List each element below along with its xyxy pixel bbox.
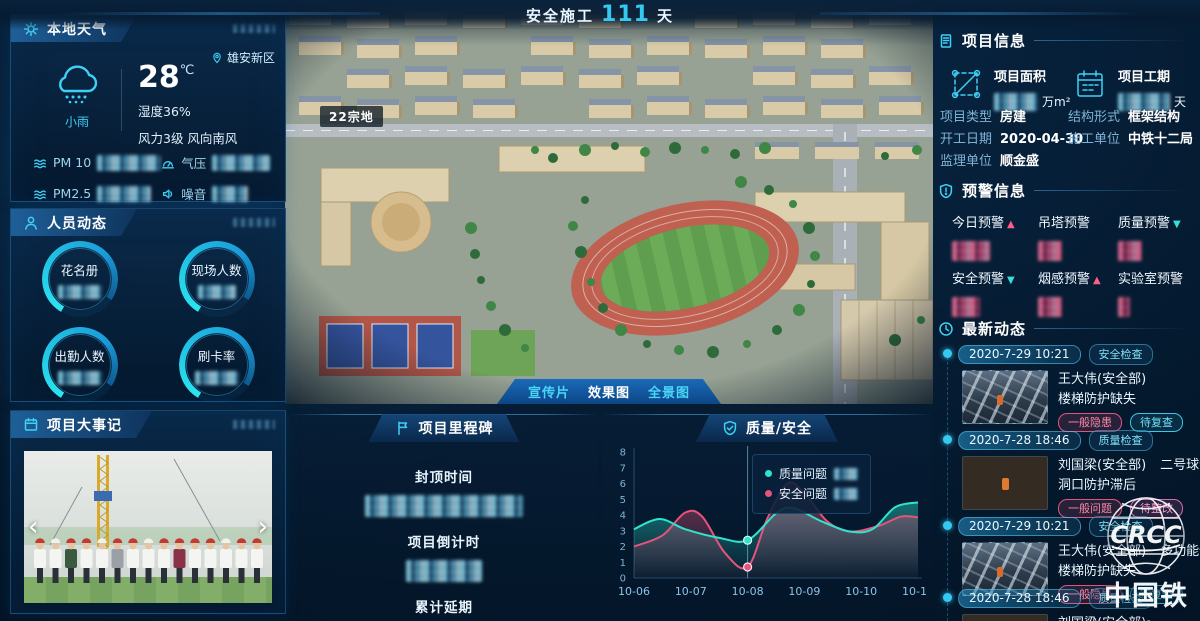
chart-tooltip: 质量问题 安全问题 [752, 454, 871, 514]
noise-value-blurred [212, 186, 248, 202]
ring-onsite: 现场人数 [179, 241, 255, 317]
clock-icon [938, 321, 954, 337]
carousel-next-icon[interactable]: › [258, 514, 268, 540]
milestone-panel: 项目里程碑 封顶时间 项目倒计时 累计延期 [290, 414, 598, 614]
alerts-title: 预警信息 [962, 180, 1026, 201]
land-parcel-label: 22宗地 [320, 106, 383, 127]
start-date-label: 开工日期 [940, 132, 992, 147]
ring-swipe-rate-label: 刷卡率 [198, 346, 236, 365]
svg-text:10-06: 10-06 [618, 585, 650, 598]
timeline-dot [943, 521, 952, 530]
area-icon [948, 66, 984, 102]
trend-down-icon: ▼ [1173, 219, 1181, 230]
alert-today-value-blurred [952, 241, 990, 261]
calendar-icon [1072, 66, 1108, 102]
svg-text:10-07: 10-07 [675, 585, 707, 598]
nav-panorama[interactable]: 全景图 [648, 382, 690, 401]
timeline-dot [943, 435, 952, 444]
svg-text:4: 4 [620, 511, 626, 522]
contractor-field: 施工单位中铁十二局 [1068, 128, 1193, 147]
quality-tooltip-value-blurred [834, 468, 858, 480]
entry-type-badge: 安全检查 [1089, 344, 1153, 365]
entry-photo[interactable] [962, 614, 1048, 621]
trend-up-icon: ▲ [1007, 219, 1015, 230]
entry-photo[interactable] [962, 370, 1048, 424]
project-duration-label: 项目工期 [1118, 66, 1186, 85]
pm25-value-blurred [97, 186, 151, 202]
ring-swipe-rate: 刷卡率 [179, 327, 255, 403]
svg-text:10-11: 10-11 [902, 585, 928, 598]
safety-legend-label: 安全问题 [779, 485, 827, 502]
entry-location: 二号球馆 [1160, 458, 1200, 473]
updates-title: 最新动态 [962, 318, 1026, 339]
ring-roster: 花名册 [42, 241, 118, 317]
events-panel: 项目大事记 ‹ › [10, 410, 286, 614]
svg-text:2: 2 [620, 542, 626, 553]
alert-crane-label: 吊塔预警 [1038, 216, 1090, 231]
countdown-value-blurred [406, 560, 482, 582]
crcc-chinese-name: 中国铁建 [1092, 574, 1200, 621]
project-area-stat: 项目面积 万m² [948, 66, 1071, 111]
project-type-field: 项目类型房建 [940, 106, 1026, 125]
entry-date: 2020-7-28 18:46 [958, 589, 1081, 608]
rain-cloud-icon [50, 63, 104, 107]
alert-quality-value-blurred [1118, 241, 1142, 261]
ring-attendance-label: 出勤人数 [54, 346, 104, 365]
chart-panel-header: 质量/安全 [696, 414, 838, 442]
alert-safety-label: 安全预警 [952, 272, 1004, 287]
trend-down-icon: ▼ [1007, 275, 1015, 286]
pressure-metric: 气压 [161, 153, 273, 172]
safe-days-count: 111 [601, 4, 650, 26]
chart-panel-title: 质量/安全 [746, 418, 812, 438]
project-area-label: 项目面积 [994, 66, 1071, 85]
safe-construction-label: 安全施工 [526, 5, 594, 26]
project-duration-stat: 项目工期 天 [1072, 66, 1186, 111]
contractor-value: 中铁十二局 [1128, 132, 1193, 147]
pressure-value-blurred [212, 155, 270, 171]
topping-time-value-blurred [365, 495, 523, 517]
update-entry[interactable]: 2020-7-29 10:21 安全检查 王大伟(安全部) 楼梯防护缺失 一般隐… [938, 344, 1200, 432]
alert-smoke: 烟感预警▲ [1038, 268, 1122, 317]
notebook-icon [23, 417, 39, 433]
quality-marker-dot [744, 536, 752, 544]
alert-safety-value-blurred [952, 297, 980, 317]
svg-text:10-08: 10-08 [732, 585, 764, 598]
header-line [1034, 40, 1190, 41]
safety-marker-dot [744, 563, 752, 571]
alert-lab-value-blurred [1118, 297, 1130, 317]
contractor-label: 施工单位 [1068, 132, 1120, 147]
weather-condition: 小雨 [33, 113, 121, 130]
mist-icon [33, 187, 47, 201]
events-panel-header: 项目大事记 [11, 411, 285, 439]
structure-type-field: 结构形式框架结构 [1068, 106, 1180, 125]
alert-smoke-value-blurred [1038, 297, 1062, 317]
updates-header: 最新动态 [938, 318, 1190, 339]
project-3d-view[interactable]: 22宗地 宣传片 效果图 全景图 [285, 0, 933, 404]
entry-person: 王大伟(安全部) [1058, 372, 1146, 387]
timeline-dot [943, 349, 952, 358]
supervisor-label: 监理单位 [940, 154, 992, 169]
mist-icon [33, 156, 47, 170]
temperature-value: 28 [138, 60, 180, 95]
countdown-label: 项目倒计时 [408, 531, 481, 551]
person-icon [23, 215, 39, 231]
entry-issue: 楼梯防护缺失 [1058, 390, 1183, 410]
trend-up-icon: ▲ [1093, 275, 1101, 286]
entry-photo[interactable] [962, 456, 1048, 510]
pressure-icon [161, 156, 175, 170]
alert-lab: 实验室预警 [1118, 268, 1200, 317]
temperature-unit: ℃ [180, 63, 195, 78]
document-icon [938, 33, 954, 49]
ring-roster-label: 花名册 [61, 260, 99, 279]
wind-label: 风力3级 风向南风 [138, 128, 237, 147]
project-info-title: 项目信息 [962, 30, 1026, 51]
header-decor [233, 218, 275, 227]
start-date-field: 开工日期2020-04-30 [940, 128, 1083, 147]
structure-type-label: 结构形式 [1068, 110, 1120, 125]
alert-shield-icon [938, 183, 954, 199]
ring-onsite-value-blurred [198, 285, 236, 299]
alert-smoke-label: 烟感预警 [1038, 272, 1090, 287]
pressure-label: 气压 [181, 153, 206, 172]
flag-icon [395, 420, 411, 436]
project-area-unit: 万m² [1042, 95, 1071, 109]
svg-text:1: 1 [620, 558, 626, 569]
quality-safety-panel: 质量/安全 01234567810-0610-0710-0810-0910-10… [602, 414, 932, 614]
pm10-value-blurred [97, 155, 161, 171]
view-switcher: 宣传片 效果图 全景图 [497, 379, 721, 404]
entry-type-badge: 质量检查 [1089, 430, 1153, 451]
timeline-dot [943, 593, 952, 602]
structure-type-value: 框架结构 [1128, 110, 1180, 125]
days-unit-label: 天 [657, 5, 674, 26]
alert-today-label: 今日预警 [952, 216, 1004, 231]
noise-metric: 噪音 [161, 184, 273, 203]
nav-render-view[interactable]: 效果图 [588, 382, 630, 401]
ring-attendance: 出勤人数 [42, 327, 118, 403]
svg-text:7: 7 [620, 463, 626, 474]
event-photo: ‹ › [24, 451, 272, 603]
speaker-icon [161, 187, 175, 201]
delay-label: 累计延期 [415, 596, 473, 616]
alert-today: 今日预警▲ [952, 212, 1036, 261]
group-photo [24, 451, 272, 603]
aerial-render [285, 0, 933, 404]
events-panel-title: 项目大事记 [47, 415, 122, 435]
alert-crane: 吊塔预警 [1038, 212, 1122, 261]
pm25-metric: PM2.5 [33, 184, 161, 203]
top-header: 安全施工 111 天 [0, 0, 1200, 30]
topping-time-label: 封顶时间 [415, 466, 473, 486]
pm10-label: PM 10 [53, 155, 91, 170]
entry-date: 2020-7-29 10:21 [958, 345, 1081, 364]
carousel-prev-icon[interactable]: ‹ [28, 514, 38, 540]
project-info-header: 项目信息 [938, 30, 1190, 51]
nav-promo-video[interactable]: 宣传片 [528, 382, 570, 401]
alerts-header: 预警信息 [938, 180, 1190, 201]
svg-text:3: 3 [620, 526, 626, 537]
crcc-globe-icon: CRCC [1098, 492, 1194, 584]
entry-date: 2020-7-28 18:46 [958, 431, 1081, 450]
supervisor-field: 监理单位顺金盛 [940, 150, 1039, 169]
svg-text:10-09: 10-09 [788, 585, 820, 598]
alert-lab-label: 实验室预警 [1118, 272, 1183, 287]
header-line [1034, 328, 1190, 329]
entry-date: 2020-7-29 10:21 [958, 517, 1081, 536]
ring-swipe-rate-value-blurred [195, 371, 239, 385]
quality-legend-dot [765, 470, 772, 477]
pm10-metric: PM 10 [33, 153, 161, 172]
supervisor-value: 顺金盛 [1000, 154, 1039, 169]
project-type-value: 房建 [1000, 110, 1026, 125]
personnel-panel-header: 人员动态 [11, 209, 285, 237]
header-decor [233, 420, 275, 429]
project-type-label: 项目类型 [940, 110, 992, 125]
milestone-panel-header: 项目里程碑 [369, 414, 520, 442]
svg-text:10-10: 10-10 [845, 585, 877, 598]
ring-roster-value-blurred [58, 285, 102, 299]
crcc-abbr-text: CRCC [1110, 521, 1182, 549]
weather-panel: 本地天气 雄安新区 小雨 28℃ 湿度36% 风力3级 风向南风 PM 10 [10, 14, 286, 202]
svg-text:6: 6 [620, 479, 626, 490]
svg-text:0: 0 [620, 574, 626, 585]
alert-quality-label: 质量预警 [1118, 216, 1170, 231]
entry-person: 刘国梁(安全部) [1058, 458, 1146, 473]
personnel-panel: 人员动态 花名册 现场人数 出勤人数 刷卡率 [10, 208, 286, 402]
location-pin-icon [211, 52, 223, 64]
noise-label: 噪音 [181, 184, 206, 203]
header-line [1034, 190, 1190, 191]
personnel-panel-title: 人员动态 [47, 213, 107, 233]
safety-tooltip-value-blurred [834, 488, 858, 500]
shield-check-icon [722, 420, 738, 436]
alert-safety: 安全预警▼ [952, 268, 1036, 317]
alert-crane-value-blurred [1038, 241, 1062, 261]
humidity-label: 湿度36% [138, 101, 237, 120]
safety-legend-dot [765, 490, 772, 497]
milestone-panel-title: 项目里程碑 [419, 418, 494, 438]
ring-attendance-value-blurred [58, 371, 102, 385]
svg-text:5: 5 [620, 495, 626, 506]
alert-quality: 质量预警▼ [1118, 212, 1200, 261]
pm25-label: PM2.5 [53, 186, 91, 201]
crcc-logo: CRCC 中国铁建 [1092, 492, 1200, 621]
ring-onsite-label: 现场人数 [191, 260, 241, 279]
quality-legend-label: 质量问题 [779, 465, 827, 482]
svg-text:8: 8 [620, 448, 626, 459]
